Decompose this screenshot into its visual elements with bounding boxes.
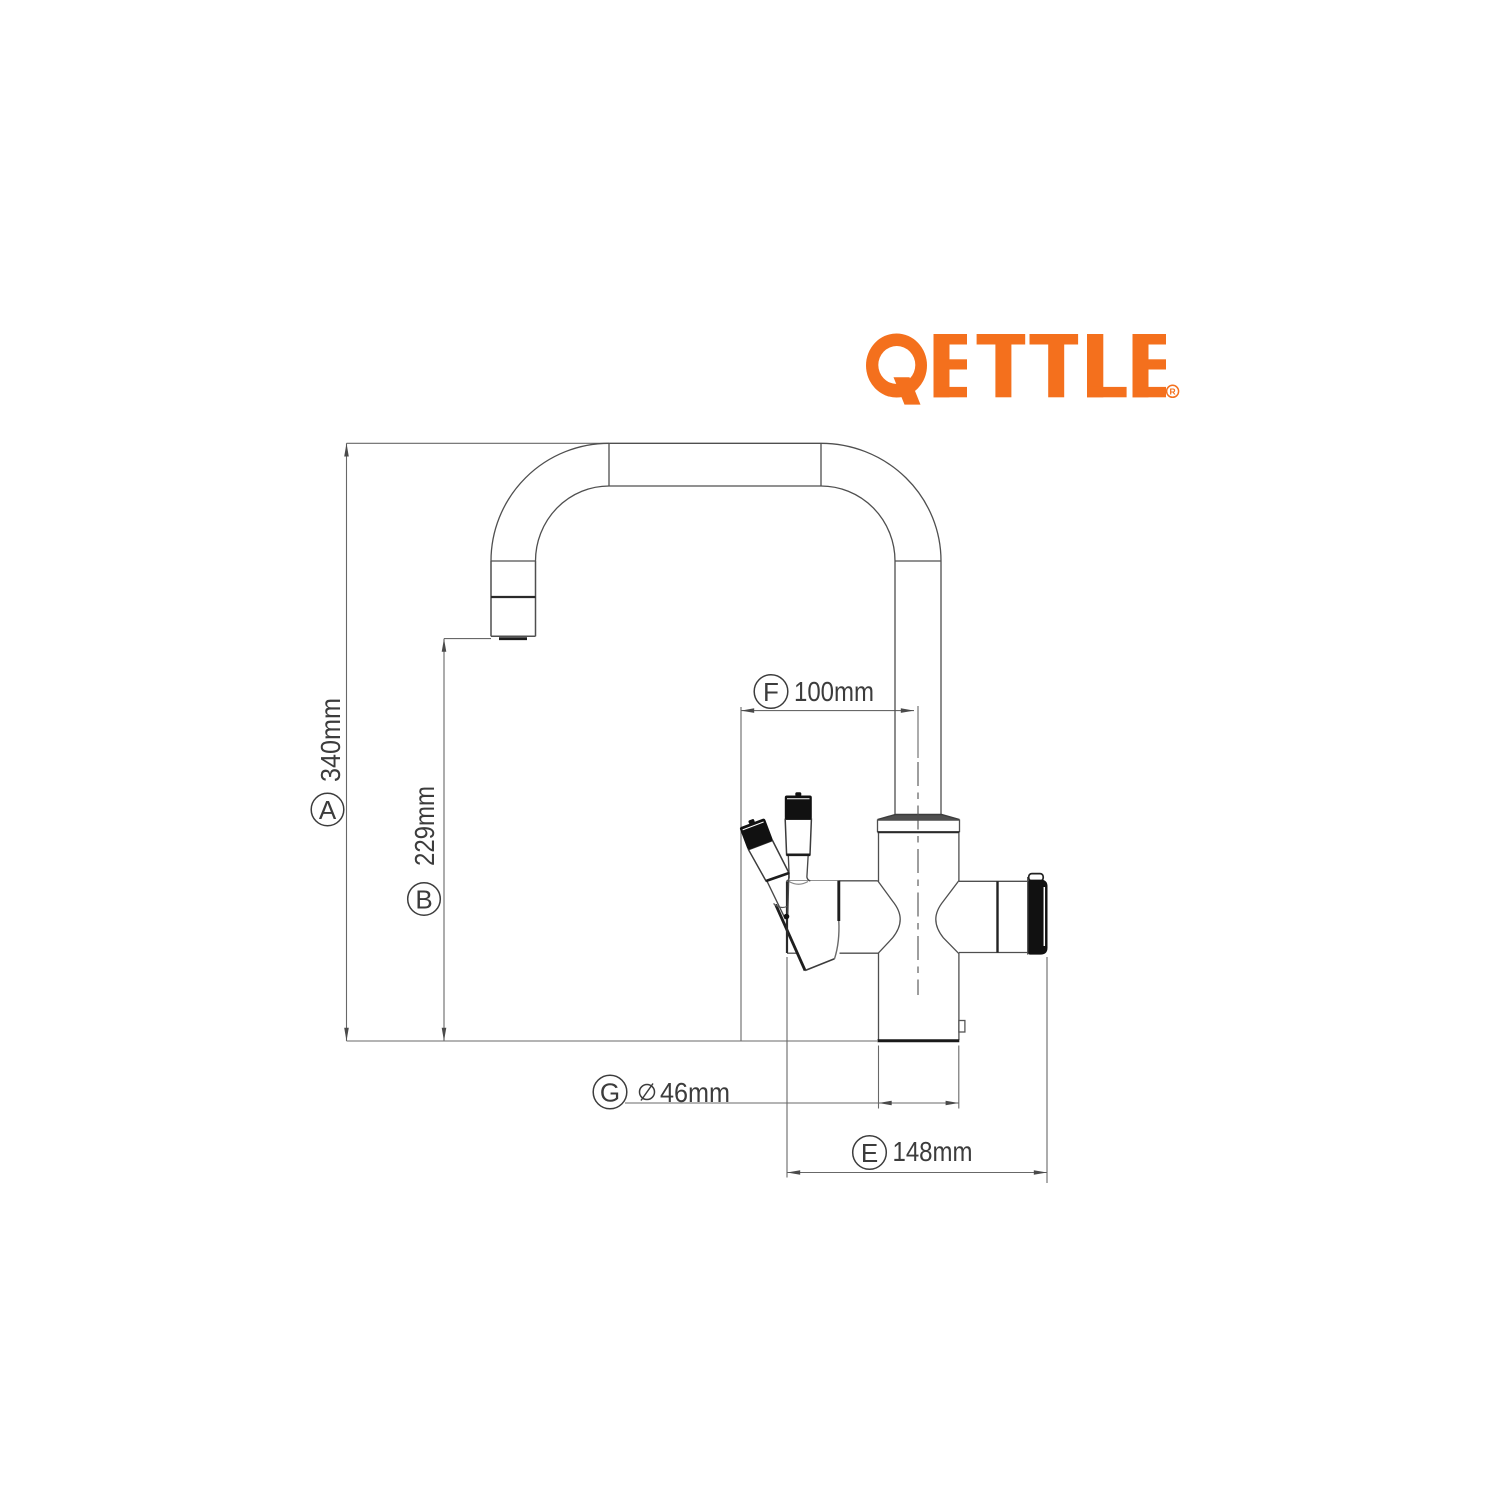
svg-text:G: G [600, 1078, 620, 1108]
svg-text:148mm: 148mm [893, 1136, 973, 1167]
svg-text:340mm: 340mm [315, 698, 346, 782]
svg-text:R: R [1170, 387, 1176, 397]
svg-text:F: F [763, 677, 779, 707]
svg-text:B: B [415, 885, 432, 915]
svg-text:A: A [319, 795, 337, 825]
svg-text:E: E [861, 1138, 878, 1168]
svg-text:46mm: 46mm [660, 1077, 730, 1108]
svg-text:229mm: 229mm [409, 786, 440, 866]
svg-text:100mm: 100mm [794, 676, 874, 707]
